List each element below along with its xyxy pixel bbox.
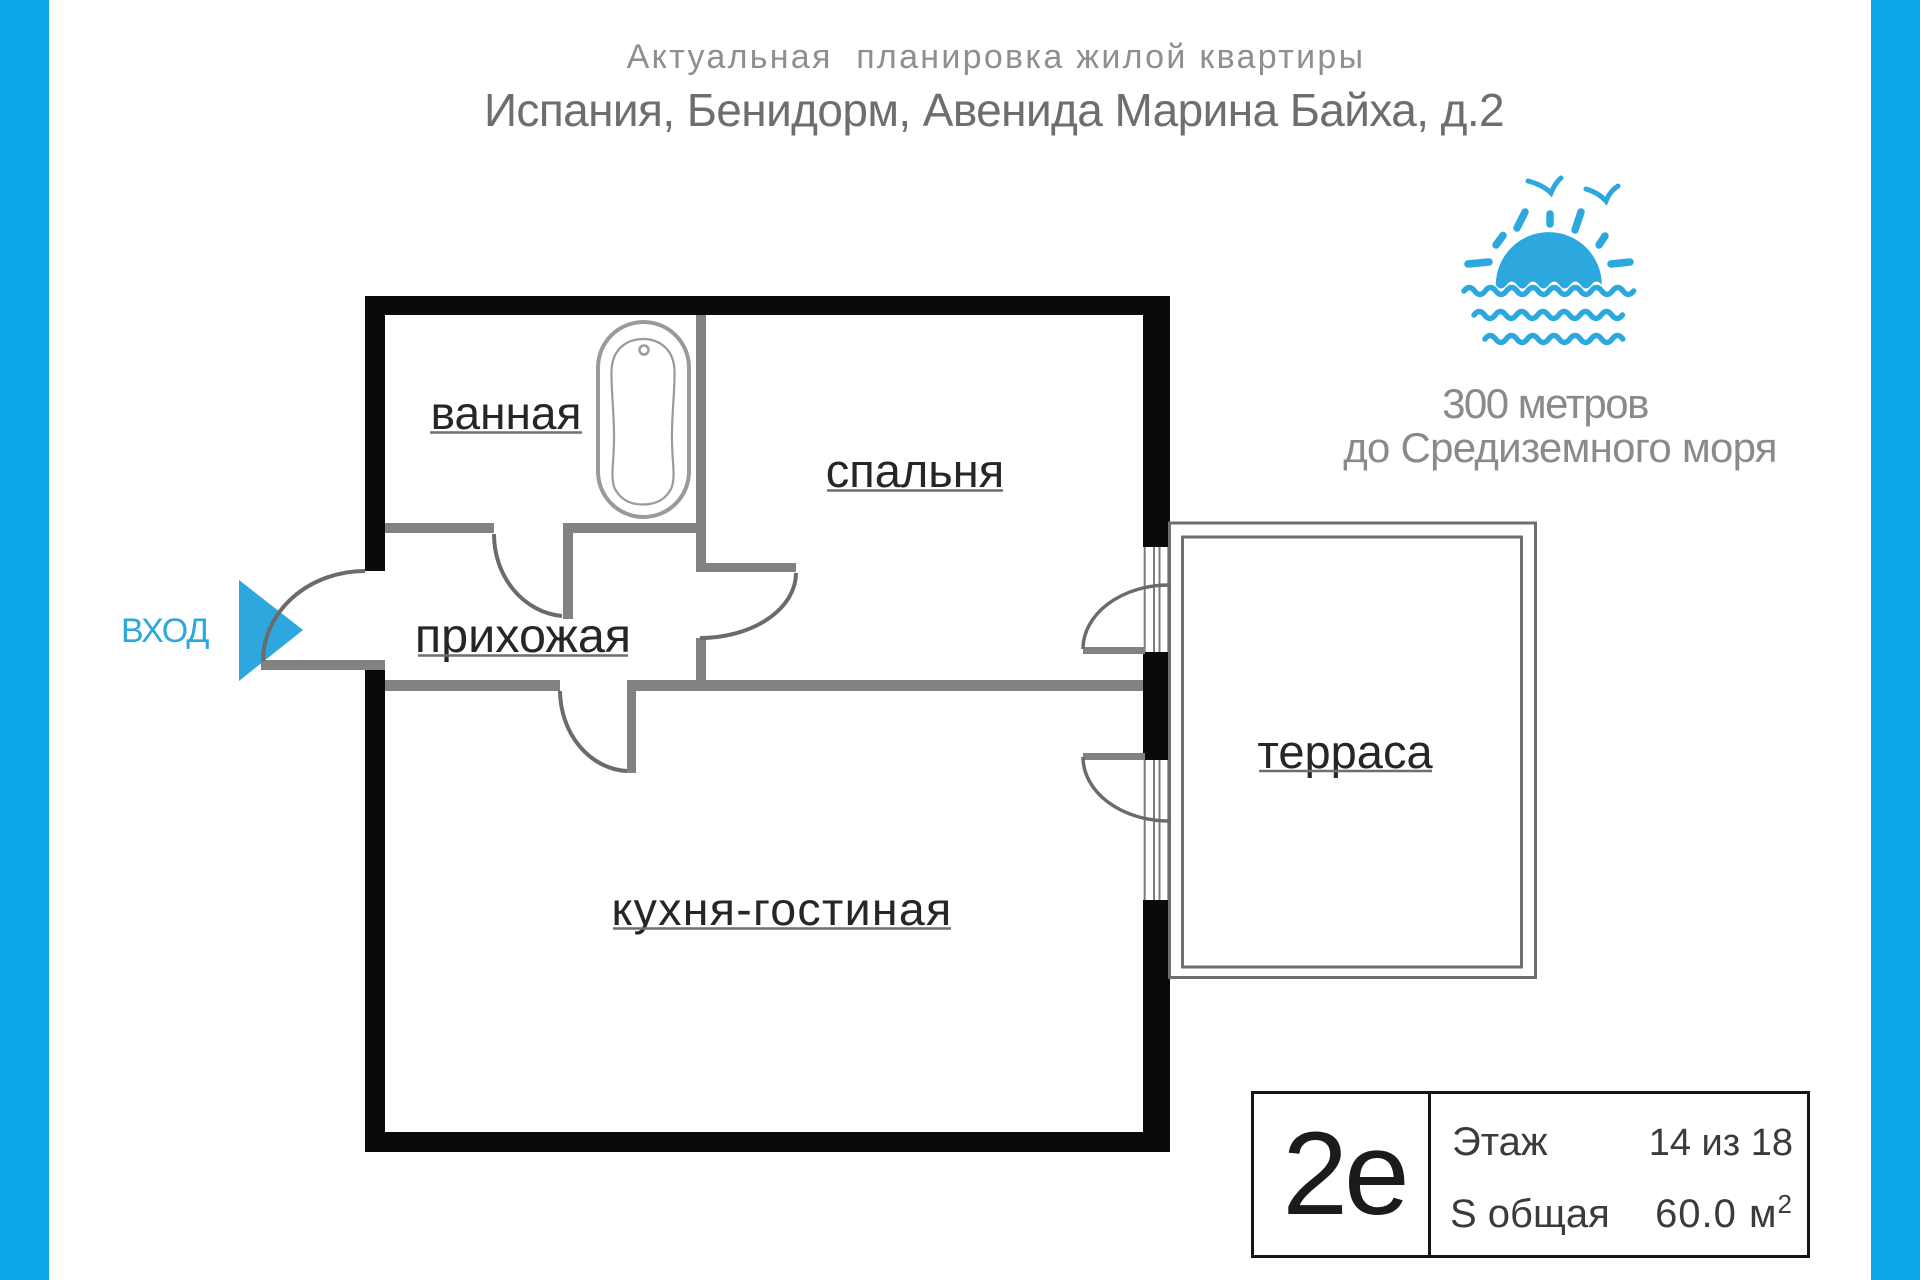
svg-text:Актуальная планировка жилой к: Актуальная планировка жилой квартиры [627,38,1366,76]
svg-text:2e: 2e [1282,1108,1405,1240]
svg-text:60.0 м2: 60.0 м2 [1655,1189,1793,1236]
svg-text:Испания, Бенидорм, Авенида Мар: Испания, Бенидорм, Авенида Марина Байха,… [484,84,1504,136]
svg-text:300 метров: 300 метров [1442,380,1648,427]
svg-text:спальня: спальня [826,444,1004,497]
svg-text:ванная: ванная [431,387,582,439]
svg-text:S общая: S общая [1450,1192,1610,1236]
svg-text:14 из 18: 14 из 18 [1649,1122,1793,1164]
svg-text:ВХОД: ВХОД [121,612,209,650]
svg-text:Этаж: Этаж [1452,1120,1548,1164]
svg-text:до Средиземного моря: до Средиземного моря [1343,424,1777,471]
svg-text:кухня-гостиная: кухня-гостиная [612,883,953,935]
